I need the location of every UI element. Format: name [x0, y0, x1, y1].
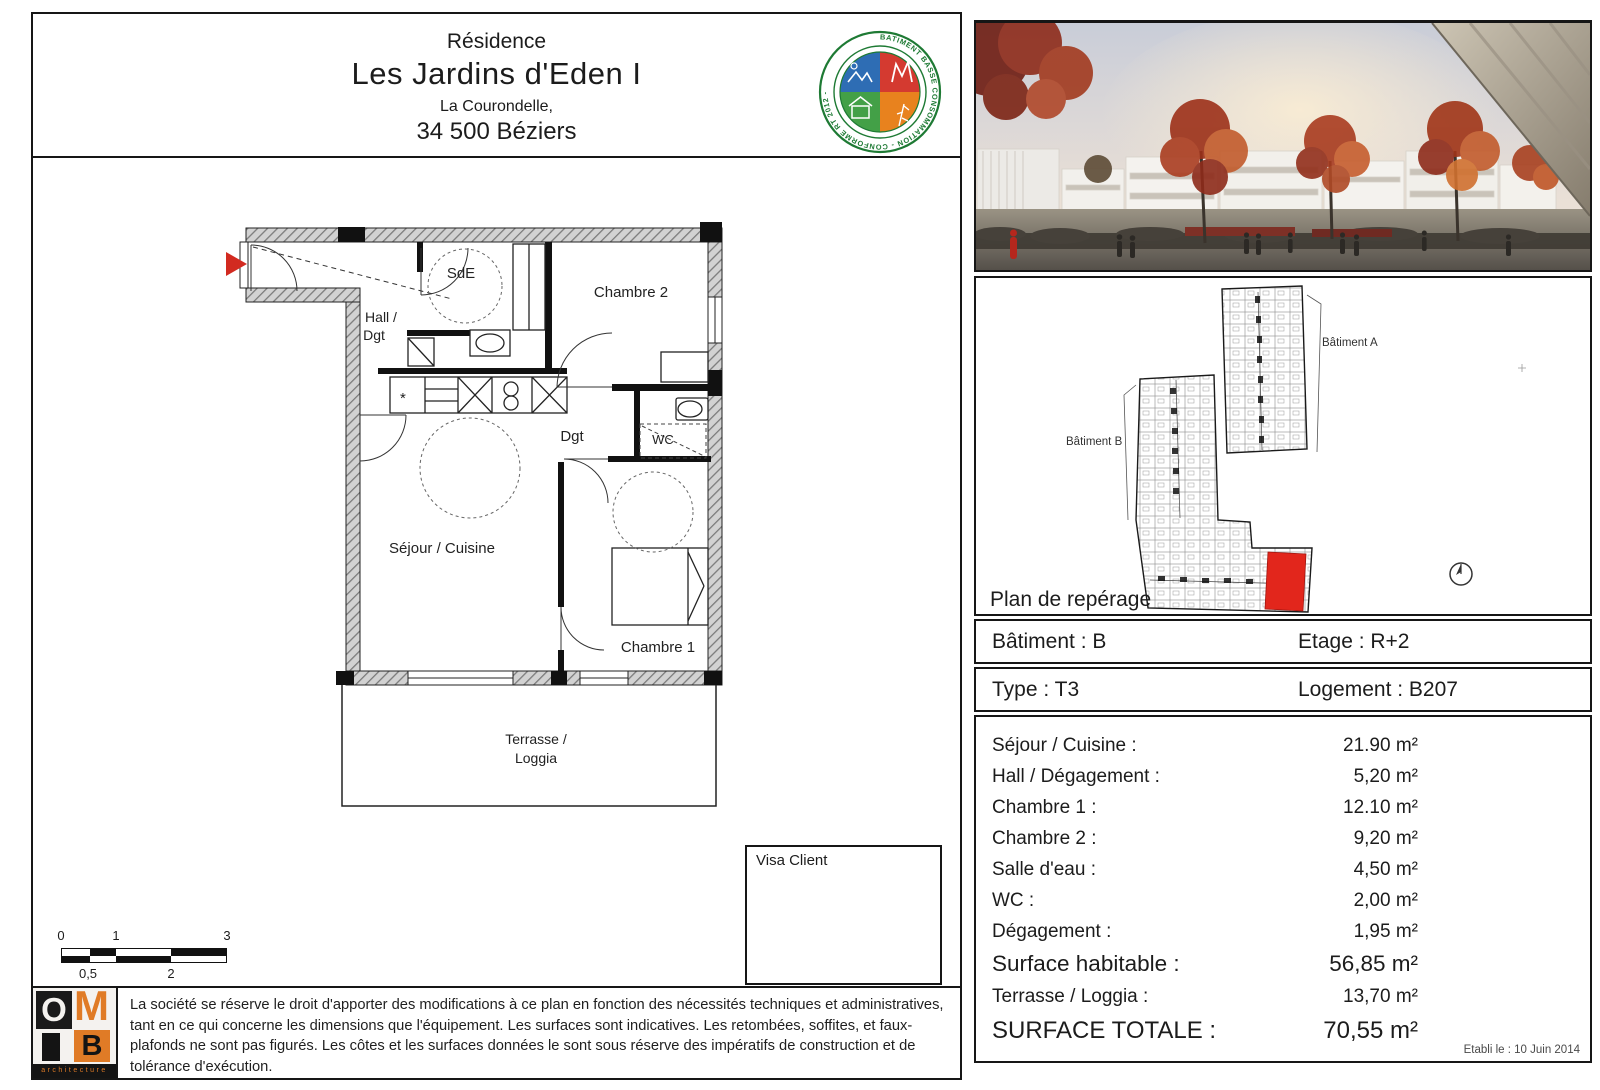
- surface-row: Séjour / Cuisine : 21.90 m²: [976, 730, 1590, 761]
- date-note: Etabli le : 10 Juin 2014: [1464, 1044, 1580, 1056]
- logement-value: Logement : B207: [1298, 678, 1458, 702]
- windows: [240, 242, 722, 685]
- scale-bar-strip: [61, 948, 227, 963]
- scale-tick: 0: [57, 928, 64, 943]
- room-label-sde: SdE: [447, 265, 475, 282]
- stamp-quadrants: [840, 52, 920, 132]
- logo-letter-m: M: [74, 986, 109, 1030]
- building-floor-row: Bâtiment : B Etage : R+2: [974, 619, 1592, 664]
- building-a-label: Bâtiment A: [1322, 337, 1378, 349]
- kitchen-counter: [390, 377, 567, 413]
- surface-row: Hall / Dégagement : 5,20 m²: [976, 761, 1590, 792]
- visa-client-box: Visa Client: [745, 845, 942, 985]
- type-unit-row: Type : T3 Logement : B207: [974, 667, 1592, 712]
- surface-row: Terrasse / Loggia : 13,70 m²: [976, 981, 1590, 1012]
- room-label-chambre2: Chambre 2: [594, 284, 668, 301]
- room-label-terrasse2: Loggia: [515, 750, 557, 766]
- bbc-eco-stamp-icon: BATIMENT BASSE CONSOMMATION - CONFORME R…: [816, 26, 944, 158]
- logo-letter-b: B: [74, 1030, 110, 1062]
- room-label-wc: WC: [652, 432, 674, 447]
- disclaimer-box: La société se réserve le droit d'apporte…: [116, 986, 962, 1080]
- room-labels: SdE Chambre 2 Hall / Dgt Dgt WC Séjour /…: [363, 265, 695, 766]
- location-plan-box: Bâtiment A Bâtiment B Plan de repérage: [974, 276, 1592, 616]
- scale-bar: 0 1 3 0,5 2: [50, 928, 245, 984]
- scale-tick: 1: [112, 928, 119, 943]
- location-plan-title: Plan de repérage: [990, 588, 1151, 611]
- visa-client-label: Visa Client: [756, 852, 827, 869]
- logo-bar: [42, 1033, 60, 1061]
- location-plan-drawing: Bâtiment A Bâtiment B Plan de repérage: [976, 278, 1590, 614]
- highlighted-unit: [1265, 552, 1306, 611]
- surface-row: WC : 2,00 m²: [976, 885, 1590, 916]
- scale-tick: 3: [223, 928, 230, 943]
- room-label-hall1: Hall /: [365, 309, 397, 325]
- render-photo: [974, 20, 1592, 272]
- logo-letter-o: O: [36, 991, 72, 1029]
- surfaces-table: Séjour / Cuisine : 21.90 m² Hall / Dégag…: [974, 715, 1592, 1063]
- survey-cross: [1518, 364, 1526, 372]
- room-label-sejour: Séjour / Cuisine: [389, 540, 495, 557]
- type-value: Type : T3: [992, 678, 1079, 702]
- scale-tick: 0,5: [79, 966, 97, 981]
- building-a-footprint: [1222, 286, 1321, 453]
- logo-caption: architecture: [33, 1064, 116, 1078]
- red-planter: [1312, 229, 1392, 237]
- render-photo-image: [976, 23, 1590, 270]
- surface-row-habitable: Surface habitable : 56,85 m²: [976, 947, 1590, 981]
- room-label-hall2: Dgt: [363, 327, 385, 343]
- surface-row: Chambre 2 : 9,20 m²: [976, 823, 1590, 854]
- room-label-dgt: Dgt: [560, 428, 584, 445]
- architect-logo: O M B architecture: [31, 986, 118, 1080]
- surface-row: Chambre 1 : 12.10 m²: [976, 792, 1590, 823]
- plan-sheet: { "header": { "line1": "Résidence", "tit…: [0, 0, 1600, 1090]
- batiment-value: Bâtiment : B: [992, 630, 1106, 654]
- surface-row: Salle d'eau : 4,50 m²: [976, 854, 1590, 885]
- surface-row: Dégagement : 1,95 m²: [976, 916, 1590, 947]
- disclaimer-text: La société se réserve le droit d'apporte…: [130, 997, 944, 1075]
- north-indicator-icon: [1450, 563, 1472, 585]
- room-label-terrasse1: Terrasse /: [505, 731, 567, 747]
- kitchen-symbol: *: [400, 390, 406, 407]
- scale-tick: 2: [167, 966, 174, 981]
- door-swings: [251, 245, 612, 650]
- room-label-chambre1: Chambre 1: [621, 639, 695, 656]
- etage-value: Etage : R+2: [1298, 630, 1410, 654]
- building-b-label: Bâtiment B: [1066, 436, 1123, 448]
- red-planter: [1185, 227, 1295, 236]
